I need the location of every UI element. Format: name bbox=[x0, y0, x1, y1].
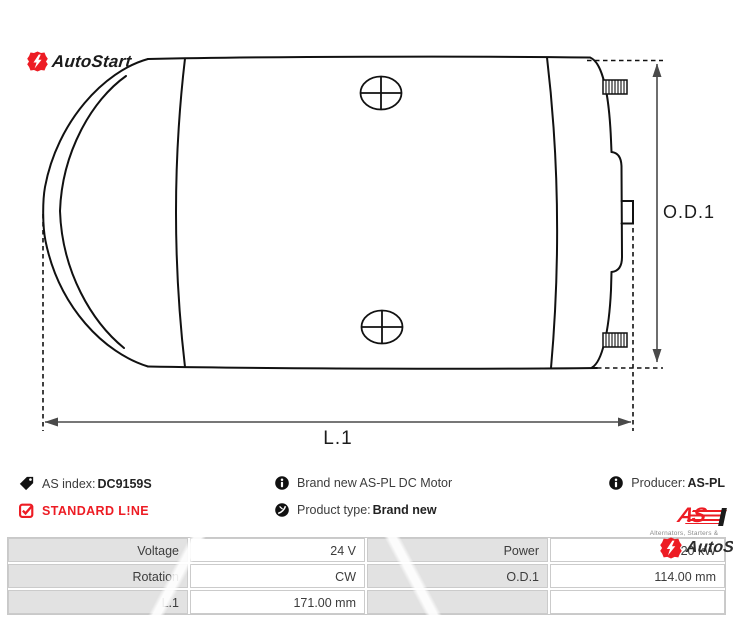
autostart-logo: AutoStart bbox=[27, 51, 131, 72]
terminal-stud-bottom bbox=[603, 333, 627, 347]
od1-dimension-label: O.D.1 bbox=[663, 202, 715, 223]
spec-value-od1: 114.00 mm bbox=[550, 564, 725, 588]
aspl-logo-mark: AS bbox=[641, 507, 727, 528]
terminal-stud-top bbox=[603, 80, 627, 94]
tag-icon bbox=[19, 476, 34, 491]
spec-label-power: Power bbox=[367, 538, 548, 562]
motor-body-outline bbox=[43, 57, 633, 369]
product-type-text: Product type:Brand new bbox=[297, 503, 437, 517]
info-icon bbox=[609, 476, 623, 490]
info-icon bbox=[275, 476, 289, 490]
producer-value: AS-PL bbox=[688, 476, 726, 490]
autostart-gear-icon bbox=[27, 51, 48, 72]
spec-value-rotation: CW bbox=[190, 564, 365, 588]
autostart-gear-icon bbox=[660, 537, 682, 559]
product-type-value: Brand new bbox=[373, 503, 437, 517]
as-index-text: AS index:DC9159S bbox=[42, 477, 152, 491]
extension-dashed-lines bbox=[43, 61, 663, 432]
spec-label-rotation: Rotation bbox=[8, 564, 188, 588]
product-type-item: Product type:Brand new bbox=[275, 503, 437, 517]
as-index-value: DC9159S bbox=[98, 477, 152, 491]
autostart-watermark-text: AutoStart bbox=[685, 539, 733, 557]
autostart-watermark: AutoStart bbox=[660, 537, 733, 559]
checkbox-icon bbox=[19, 503, 34, 518]
standard-line-item: STANDARD L!NE bbox=[19, 503, 149, 518]
spec-table: Voltage 24 V Power 2.20 kW Rotation CW O… bbox=[7, 537, 726, 615]
screw-bottom bbox=[362, 311, 403, 344]
spec-label-voltage: Voltage bbox=[8, 538, 188, 562]
product-type-label: Product type: bbox=[297, 503, 371, 517]
spec-label-l1: L.1 bbox=[8, 590, 188, 614]
autostart-logo-text: AutoStart bbox=[51, 52, 132, 72]
description-text: Brand new AS-PL DC Motor bbox=[297, 476, 452, 490]
spec-label-od1: O.D.1 bbox=[367, 564, 548, 588]
od1-dimension-arrow bbox=[653, 64, 662, 363]
as-index-item: AS index:DC9159S bbox=[19, 476, 152, 491]
aspl-logo-text: AS bbox=[675, 504, 707, 528]
spec-value-l1: 171.00 mm bbox=[190, 590, 365, 614]
globe-icon bbox=[275, 503, 289, 517]
spec-label-empty bbox=[367, 590, 548, 614]
spec-value-voltage: 24 V bbox=[190, 538, 365, 562]
as-index-label: AS index: bbox=[42, 477, 96, 491]
producer-text: Producer:AS-PL bbox=[631, 476, 725, 490]
screw-top bbox=[361, 77, 402, 110]
description-item: Brand new AS-PL DC Motor bbox=[275, 476, 452, 490]
l1-dimension-label: L.1 bbox=[313, 428, 363, 450]
product-spec-sheet: O.D.1 L.1 AutoStart AS index:DC9159S STA… bbox=[0, 0, 733, 623]
spec-value-empty bbox=[550, 590, 725, 614]
producer-item: Producer:AS-PL bbox=[609, 476, 725, 490]
producer-label: Producer: bbox=[631, 476, 685, 490]
standard-line-badge: STANDARD L!NE bbox=[42, 504, 149, 518]
l1-dimension-arrow bbox=[45, 418, 632, 427]
